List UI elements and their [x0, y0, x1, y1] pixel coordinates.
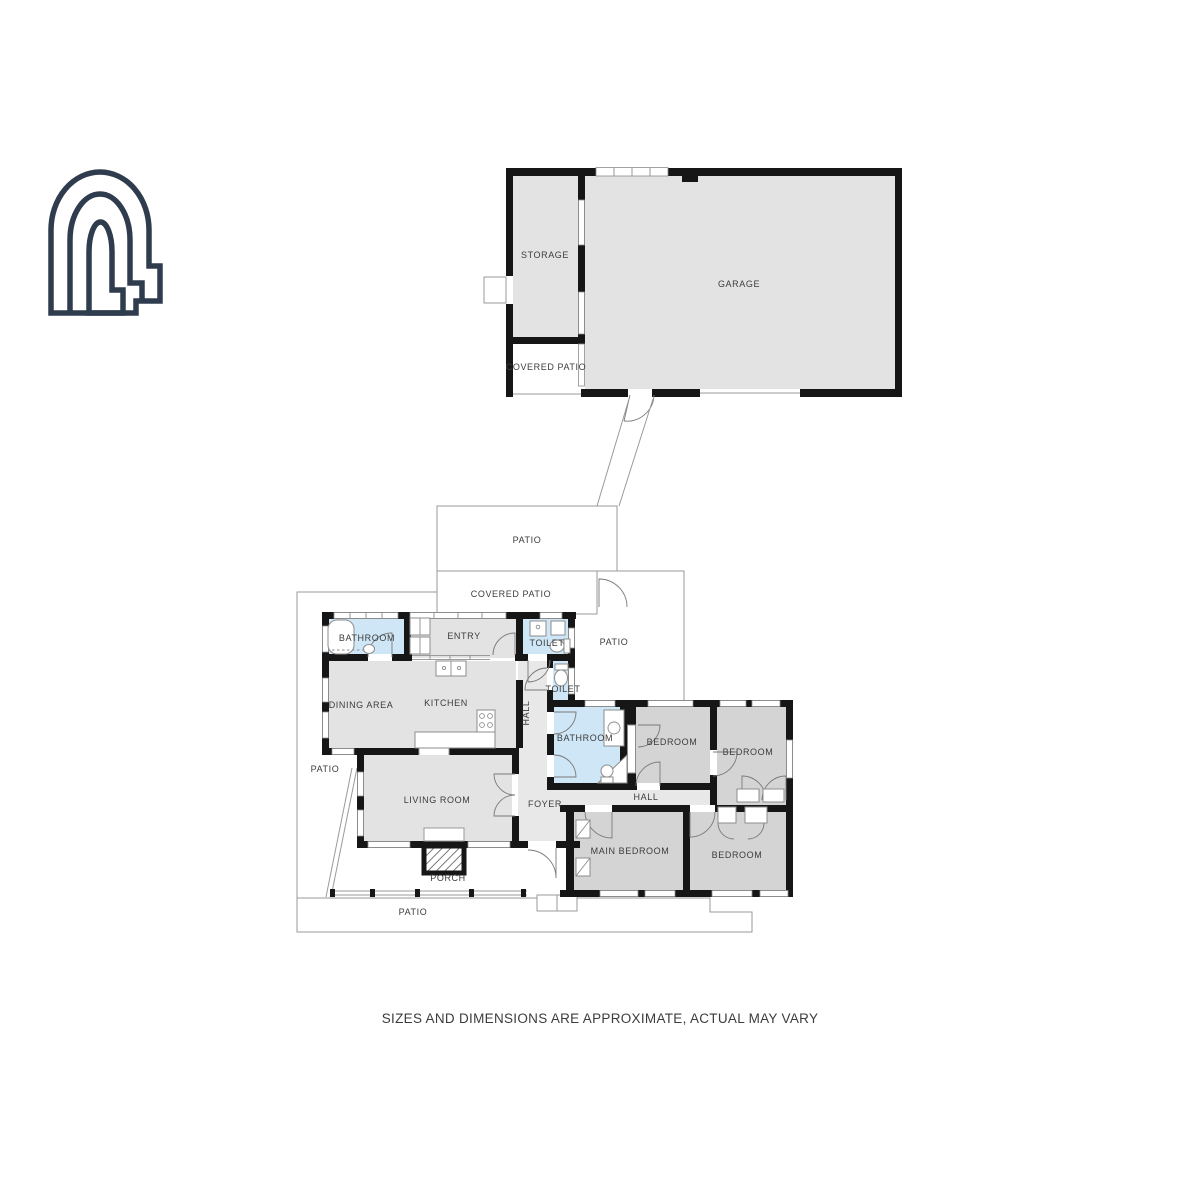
- bedroom-mid-left-label: BEDROOM: [647, 737, 698, 747]
- arch-logo: [51, 172, 160, 313]
- storage-door-gap: [506, 276, 513, 304]
- porch-step: [424, 828, 464, 841]
- right-patio-label: PATIO: [600, 637, 629, 647]
- porch-label: PORCH: [430, 873, 466, 883]
- garage-block: STORAGE GARAGE COVERED PATIO: [484, 168, 902, 422]
- porch-hatch: [424, 846, 464, 873]
- porch: [424, 828, 464, 873]
- hall-rear-label: HALL: [634, 792, 659, 802]
- hall-upper-label: HALL: [521, 701, 531, 726]
- living-room-label: LIVING ROOM: [404, 795, 471, 805]
- dining-area-label: DINING AREA: [329, 700, 394, 710]
- bottom-patio-label: PATIO: [399, 907, 428, 917]
- bedroom-mid-right-label: BEDROOM: [723, 747, 774, 757]
- shower-base: [551, 621, 565, 635]
- toilet-fixture: [364, 645, 375, 654]
- room-hall-rear: [547, 790, 713, 805]
- bathroom-rear-label: BATHROOM: [557, 733, 613, 743]
- house-covered-patio-label: COVERED PATIO: [471, 589, 551, 599]
- floorplan-canvas: STORAGE GARAGE COVERED PATIO PATIO COVER…: [0, 0, 1200, 1200]
- toilet-front-label: TOILET: [530, 638, 565, 648]
- garage-rear-door-arc: [624, 395, 654, 421]
- upper-patio-label: PATIO: [513, 535, 542, 545]
- main-bedroom-label: MAIN BEDROOM: [591, 846, 670, 856]
- entry-label: ENTRY: [447, 631, 480, 641]
- storage-door-leaf: [484, 277, 506, 303]
- kitchen-counter: [415, 732, 495, 748]
- porch-railing: [330, 889, 527, 897]
- left-patio-label: PATIO: [311, 764, 340, 774]
- covered-patio-door-arc: [599, 579, 627, 607]
- bedroom-rear-label: BEDROOM: [712, 850, 763, 860]
- toilet-rear-label: TOILET: [546, 684, 581, 694]
- bottom-patio: [297, 898, 752, 932]
- kitchen-label: KITCHEN: [424, 698, 468, 708]
- disclaimer-text: SIZES AND DIMENSIONS ARE APPROXIMATE, AC…: [382, 1011, 819, 1026]
- foyer-label: FOYER: [528, 799, 562, 809]
- toilet-fixture: [601, 765, 613, 777]
- floorplan-page: STORAGE GARAGE COVERED PATIO PATIO COVER…: [0, 0, 1200, 1200]
- garage-covered-patio-label: COVERED PATIO: [506, 362, 586, 372]
- garage-label: GARAGE: [718, 279, 760, 289]
- front-steps: [537, 895, 577, 911]
- stove: [477, 710, 495, 732]
- storage-label: STORAGE: [521, 250, 569, 260]
- bathroom-front-label: BATHROOM: [339, 633, 395, 643]
